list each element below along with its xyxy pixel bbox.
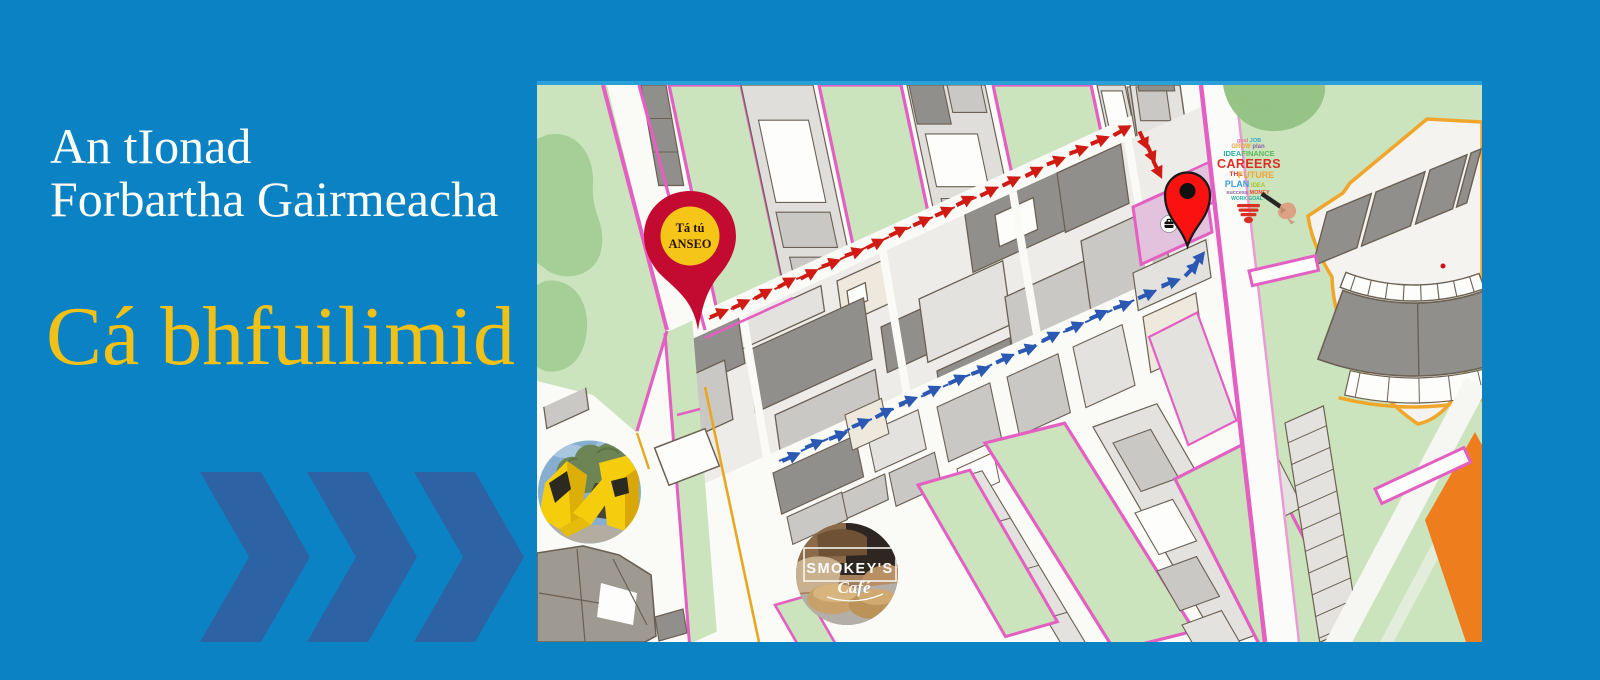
- svg-text:ANSEO: ANSEO: [668, 237, 711, 251]
- svg-text:CAREERS: CAREERS: [1217, 157, 1281, 171]
- svg-text:Tá tú: Tá tú: [676, 221, 705, 235]
- svg-text:SMOKEY'S: SMOKEY'S: [806, 561, 893, 577]
- svg-text:WORK GOAL: WORK GOAL: [1231, 196, 1263, 202]
- svg-text:Café: Café: [837, 578, 872, 597]
